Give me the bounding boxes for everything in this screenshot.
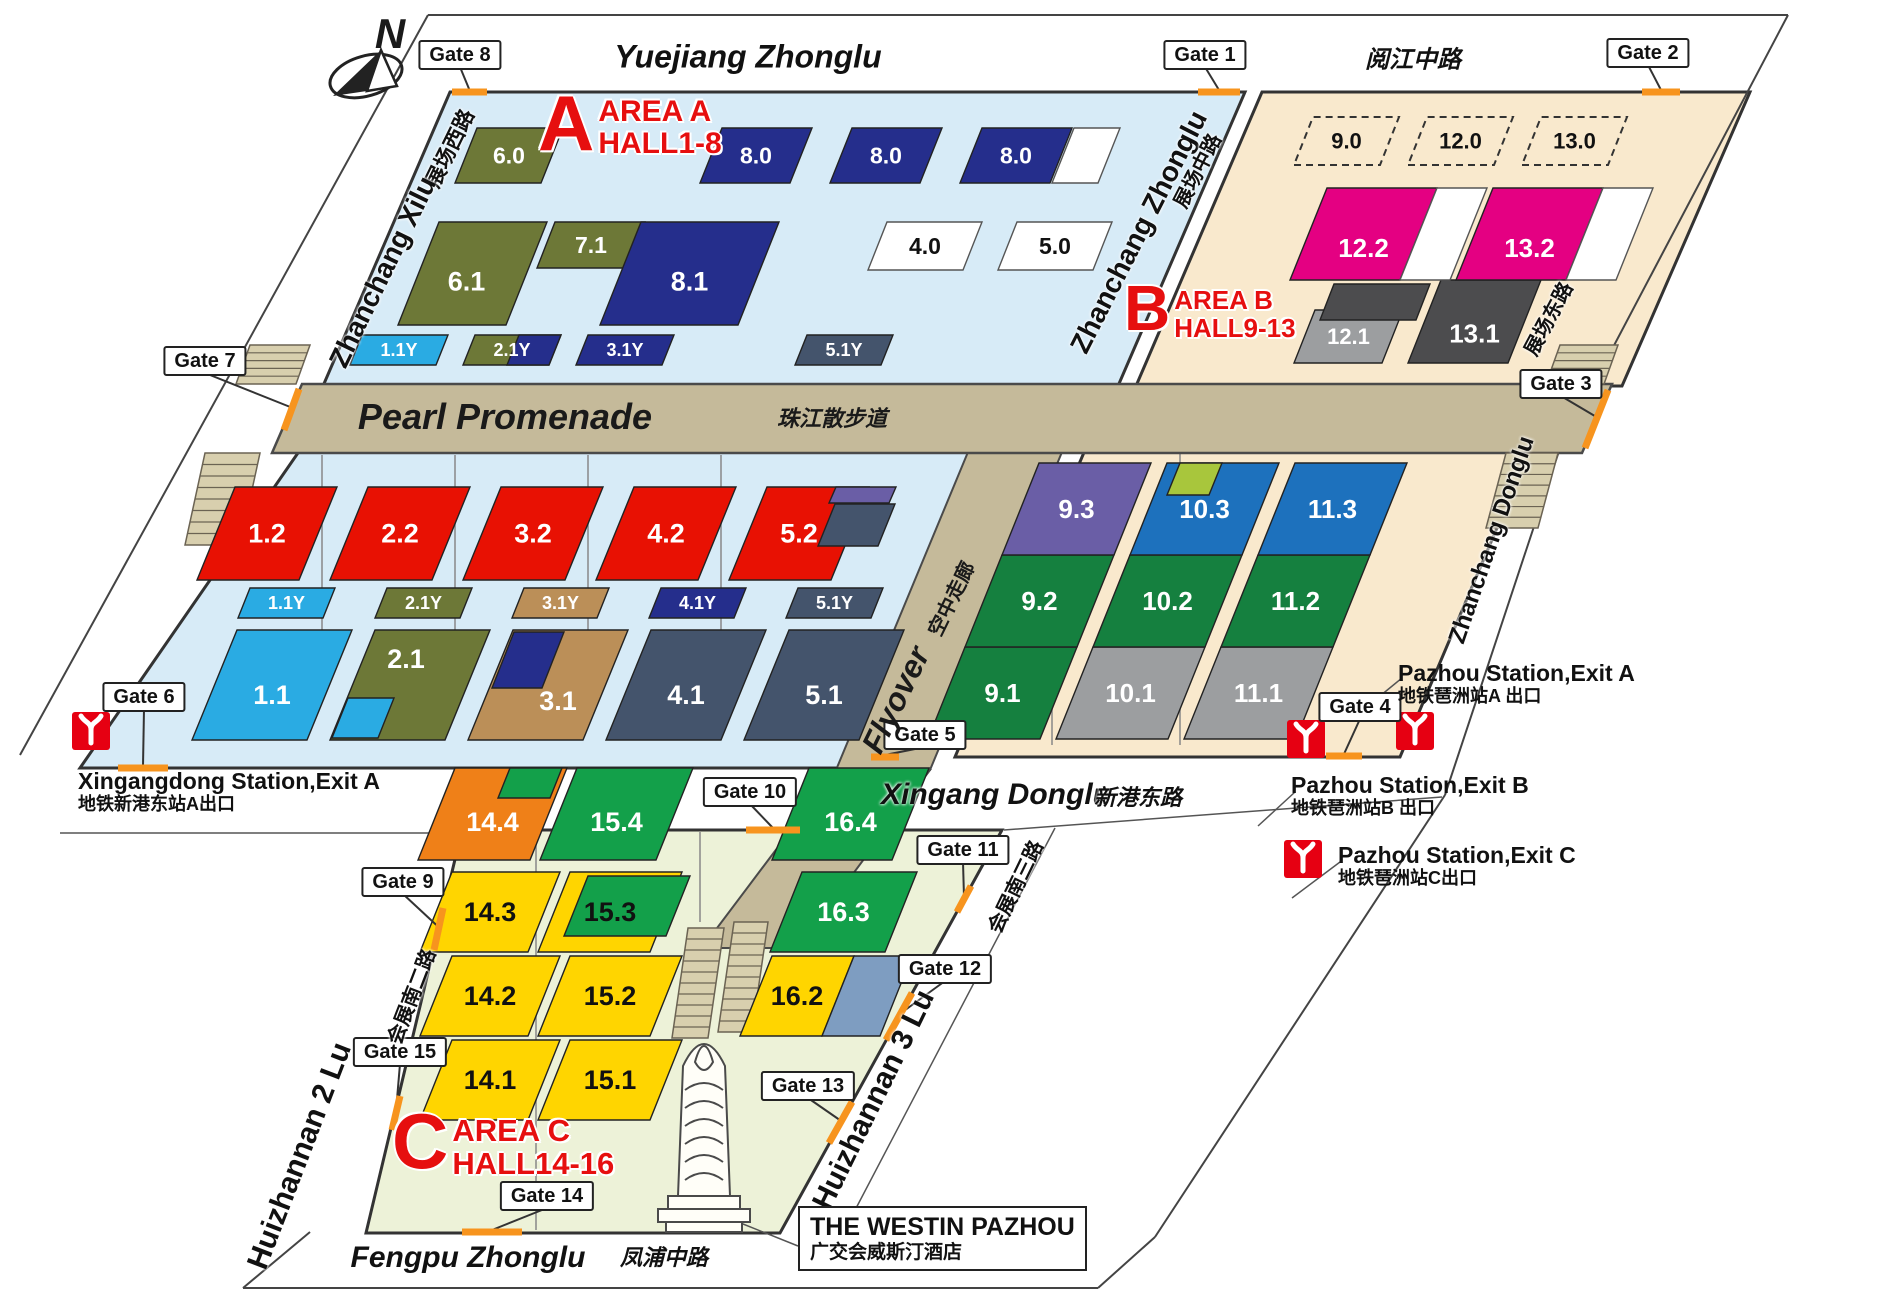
hall-label-11.2: 11.2 [1271,586,1320,616]
hall-label-15.1: 15.1 [584,1065,637,1095]
gate-pointer-9 [403,894,439,927]
hall-label-6.0: 6.0 [493,143,525,169]
hall-label-14.2: 14.2 [464,981,517,1011]
gate-pointer-6 [143,709,144,766]
hall-1.1Y-18: 1.1Y [238,588,335,618]
hall-label-11.1: 11.1 [1234,678,1283,708]
hall-label-5.0: 5.0 [1039,233,1071,259]
hall-label-1.1Y: 1.1Y [268,593,305,613]
hall-label-14.4: 14.4 [466,807,519,837]
hall-5.0-8: 5.0 [998,222,1112,270]
hall-block-32 [1320,284,1430,320]
hall-label-16.4: 16.4 [824,807,877,837]
hall-5.1Y-22: 5.1Y [786,588,883,618]
hall-4.1Y-21: 4.1Y [649,588,746,618]
metro-icon [1287,720,1325,758]
hall-label-10.3: 10.3 [1179,494,1230,524]
hall-label-4.0: 4.0 [909,233,941,259]
hall-label-9.1: 9.1 [984,678,1020,708]
gate-pointer-8 [460,67,470,90]
hall-8.0-3: 8.0 [960,128,1120,183]
hall-1.1Y-9: 1.1Y [350,335,448,365]
pearl-promenade-band [272,384,1612,453]
hall-label-9.0: 9.0 [1331,129,1362,154]
hall-2.1Y-19: 2.1Y [375,588,472,618]
hall-label-16.2: 16.2 [771,981,824,1011]
hall-label-9.2: 9.2 [1021,586,1057,616]
hall-label-10.2: 10.2 [1142,586,1193,616]
hall-label-5.1Y: 5.1Y [816,593,853,613]
canton-fair-complex-map: 6.08.08.08.06.17.18.14.05.01.1Y2.1Y3.1Y5… [0,0,1900,1316]
gate-pointer-1 [1205,67,1219,90]
hall-label-13.0: 13.0 [1553,129,1596,154]
hall-label-4.1: 4.1 [667,680,705,710]
hall-label-15.2: 15.2 [584,981,637,1011]
hall-label-4.2: 4.2 [647,519,685,549]
hall-label-1.1: 1.1 [253,680,291,710]
hall-label-3.1Y: 3.1Y [542,593,579,613]
hall-label-2.1Y: 2.1Y [405,593,442,613]
hall-label-7.1: 7.1 [575,232,607,258]
hall-label-12.0: 12.0 [1439,129,1482,154]
hall-label-12.1: 12.1 [1327,324,1370,349]
hall-label-2.1Y: 2.1Y [493,340,530,360]
gate-pointer-11 [963,862,964,897]
hall-3.1Y-11: 3.1Y [576,335,674,365]
hall-label-16.3: 16.3 [817,897,870,927]
metro-icon [1284,840,1322,878]
hall-label-5.1Y: 5.1Y [825,340,862,360]
hall-label-5.2: 5.2 [780,519,818,549]
hall-label-8.1: 8.1 [671,267,709,297]
hall-label-12.2: 12.2 [1338,233,1389,263]
hall-label-3.1: 3.1 [539,686,577,716]
hall-2.1Y-10: 2.1Y [463,335,561,365]
hall-label-15.4: 15.4 [590,807,643,837]
hall-label-10.1: 10.1 [1105,678,1156,708]
hall-label-15.3: 15.3 [584,897,637,927]
hall-label-14.1: 14.1 [464,1065,517,1095]
hall-label-13.1: 13.1 [1449,319,1500,349]
hall-label-11.3: 11.3 [1308,494,1357,524]
hall-label-8.0: 8.0 [740,143,772,169]
hall-label-3.1Y: 3.1Y [606,340,643,360]
hall-label-13.2: 13.2 [1504,233,1555,263]
hall-label-8.0: 8.0 [870,143,902,169]
hall-3.1Y-20: 3.1Y [512,588,609,618]
gate-pointer-10 [750,804,773,828]
gate-pointer-2 [1648,65,1661,90]
hall-label-5.1: 5.1 [805,680,843,710]
hall-label-1.2: 1.2 [248,519,286,549]
hall-label-3.2: 3.2 [514,519,552,549]
hall-label-14.3: 14.3 [464,897,517,927]
hall-4.0-7: 4.0 [868,222,982,270]
hall-label-2.1: 2.1 [387,644,425,674]
hall-5.1Y-12: 5.1Y [795,335,893,365]
hall-label-9.3: 9.3 [1058,494,1094,524]
metro-icon [72,712,110,750]
hall-label-4.1Y: 4.1Y [679,593,716,613]
map-base-graphics: 6.08.08.08.06.17.18.14.05.01.1Y2.1Y3.1Y5… [0,0,1900,1316]
metro-icon [1396,712,1434,750]
hall-label-2.2: 2.2 [381,519,419,549]
hall-label-1.1Y: 1.1Y [380,340,417,360]
hall-label-8.0: 8.0 [1000,143,1032,169]
hall-label-6.1: 6.1 [448,267,486,297]
